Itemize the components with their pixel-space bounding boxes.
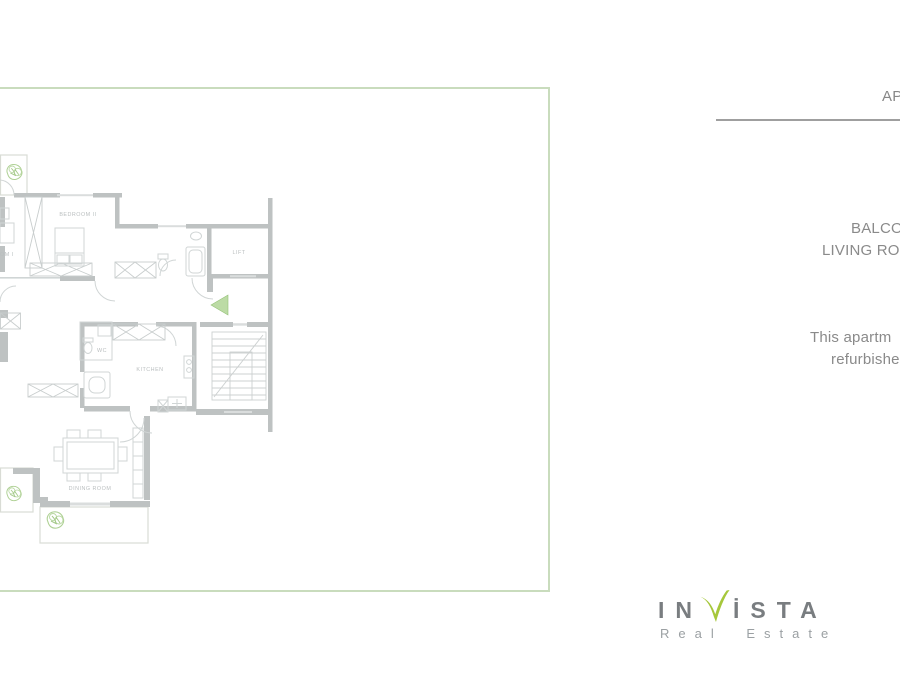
section-heading: AP bbox=[882, 88, 900, 105]
entrance-arrow-icon bbox=[211, 295, 228, 315]
room-list-line-2: LIVING RO bbox=[822, 242, 900, 259]
invista-logo: IN İSTA Real Estate bbox=[658, 590, 898, 641]
description-line-1: This apartm bbox=[810, 329, 891, 346]
heading-divider bbox=[716, 119, 900, 121]
label-kitchen: KITCHEN bbox=[136, 367, 163, 373]
staircase bbox=[212, 332, 266, 400]
plant-icon bbox=[7, 164, 22, 179]
logo-text-start: IN bbox=[658, 599, 703, 622]
floor-plan: BEDROOM II OM I LIFT WC KITCHEN DINING R… bbox=[0, 150, 300, 550]
plant-icon bbox=[7, 486, 21, 500]
logo-text-end: İSTA bbox=[733, 599, 828, 622]
room-list-line-1: BALCO bbox=[851, 220, 900, 237]
brochure-page: BEDROOM II OM I LIFT WC KITCHEN DINING R… bbox=[0, 0, 900, 675]
logo-v-icon bbox=[700, 590, 730, 623]
invista-wordmark: IN İSTA bbox=[658, 590, 898, 622]
label-wc: WC bbox=[97, 348, 107, 354]
description-line-2: refurbishe bbox=[831, 351, 900, 368]
walls bbox=[0, 193, 273, 507]
door-arcs bbox=[0, 180, 213, 442]
logo-tagline: Real Estate bbox=[658, 626, 898, 641]
plant-icon bbox=[47, 512, 63, 528]
label-dining: DINING ROOM bbox=[69, 486, 112, 492]
label-bedroom2: BEDROOM II bbox=[59, 212, 96, 218]
label-lift: LIFT bbox=[232, 250, 245, 256]
label-bedroom1: OM I bbox=[0, 252, 14, 258]
